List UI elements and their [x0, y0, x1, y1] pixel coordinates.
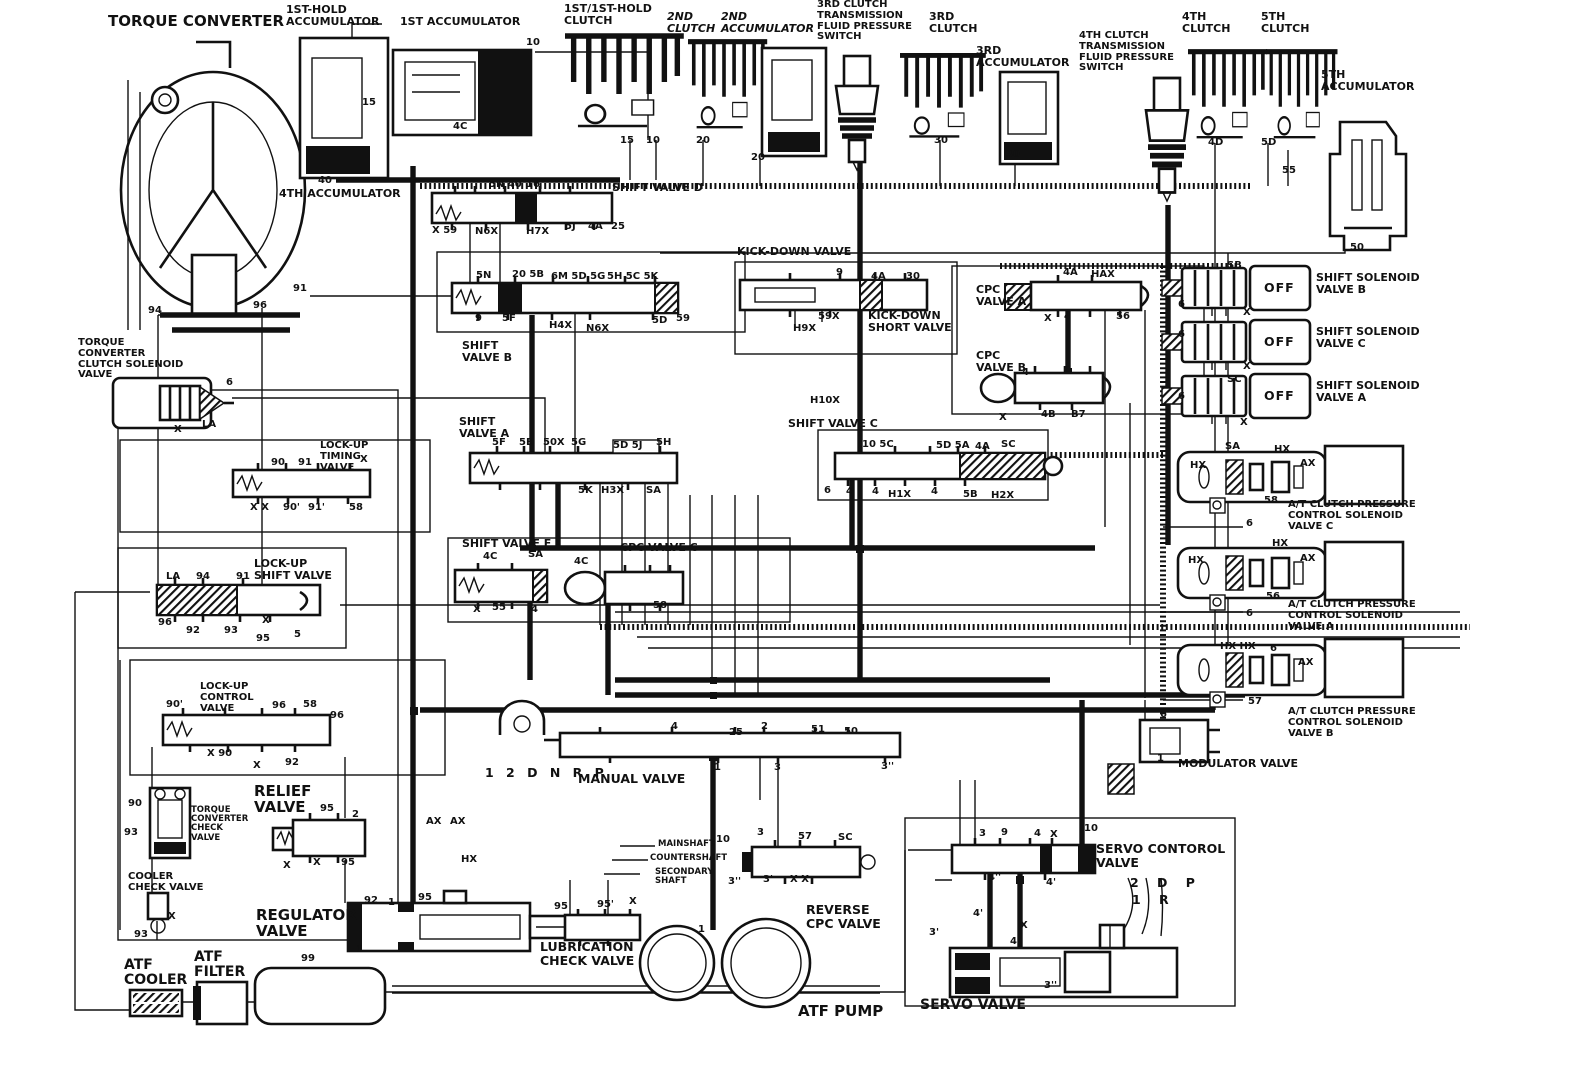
port-label: 4	[1064, 312, 1071, 322]
fifth-accumulator	[1330, 122, 1406, 250]
port-label: 5	[294, 630, 301, 640]
hydraulic-circuit-diagram: TORQUE CONVERTER 1ST-HOLD ACCUMULATOR 1S…	[0, 0, 1584, 1074]
label-atf-filter: ATF FILTER	[194, 950, 245, 979]
port-label: X X	[790, 875, 809, 885]
label-mainshaft: MAINSHAFT	[658, 840, 715, 849]
port-label: OFF	[1264, 390, 1295, 403]
label-servo-valve: SERVO VALVE	[920, 998, 1026, 1013]
label-fourth-accumulator: 4TH ACCUMULATOR	[279, 188, 401, 200]
label-first-hold-accumulator: 1ST-HOLD ACCUMULATOR	[286, 4, 379, 28]
label-atf-pump: ATF PUMP	[798, 1004, 883, 1020]
port-label: 94	[196, 572, 210, 582]
port-label: X	[999, 413, 1007, 423]
port-label: 5N 40	[489, 180, 522, 190]
port-label: 3''	[728, 877, 741, 887]
port-label: H3X	[601, 486, 624, 496]
port-label: 25	[611, 222, 625, 232]
port-label: X	[1243, 362, 1251, 372]
port-label: HAX	[1091, 270, 1115, 280]
label-cooler-check-valve: COOLER CHECK VALVE	[128, 872, 203, 894]
port-label: X	[1240, 418, 1248, 428]
port-label: SC	[1001, 440, 1016, 450]
port-label: 4''	[1010, 937, 1023, 947]
port-label: 59	[676, 314, 690, 324]
fourth-clutch	[1188, 52, 1267, 138]
port-label: SA	[646, 486, 661, 496]
label-shift-solenoid-b: SHIFT SOLENOID VALVE B	[1316, 272, 1420, 296]
port-label: X	[1243, 308, 1251, 318]
port-label: HX	[1272, 539, 1288, 549]
port-label: HX	[1190, 461, 1206, 471]
port-label: SA	[1225, 442, 1240, 452]
port-label: 10 5C	[862, 440, 894, 450]
port-label: 50	[1350, 243, 1364, 253]
port-label: X	[1050, 830, 1058, 840]
port-label: 10	[646, 136, 660, 146]
port-label: 95	[418, 893, 432, 903]
port-label: X	[629, 897, 637, 907]
port-label: H4X	[549, 321, 572, 331]
port-label: X	[313, 858, 321, 868]
port-label: 5D	[1261, 138, 1276, 148]
port-label: 15	[362, 98, 376, 108]
port-label: 91'	[308, 503, 325, 513]
port-label: LA	[202, 420, 216, 430]
port-label: 5D 5J	[613, 441, 642, 451]
port-label: X	[262, 616, 270, 626]
label-shift-solenoid-c: SHIFT SOLENOID VALVE C	[1316, 326, 1420, 350]
port-label: 5F	[492, 438, 506, 448]
port-label: 30	[934, 136, 948, 146]
label-lockup-control-valve: LOCK-UP CONTROL VALVE	[200, 682, 254, 714]
port-label: 91	[236, 572, 250, 582]
label-second-clutch: 2ND CLUTCH	[667, 11, 715, 35]
port-label: SB	[1227, 261, 1242, 271]
label-at-cpcs-a: A/T CLUTCH PRESSURE CONTROL SOLENOID VAL…	[1288, 600, 1416, 632]
label-shift-valve-c: SHIFT VALVE C	[788, 418, 878, 430]
second-clutch	[688, 42, 767, 128]
label-kick-down-valve: KICK-DOWN VALVE	[737, 246, 851, 258]
port-label: 9	[1001, 828, 1008, 838]
port-label: 4'	[973, 909, 983, 919]
port-label: OFF	[1264, 336, 1295, 349]
port-label: AX	[1300, 554, 1315, 564]
label-lubrication-check-valve: LUBRICATION CHECK VALVE	[540, 940, 634, 967]
port-label: X	[174, 425, 182, 435]
port-label: 16	[526, 180, 540, 190]
port-label: 50X	[543, 438, 565, 448]
port-label: 4D	[1208, 138, 1223, 148]
port-label: 6	[1270, 644, 1277, 654]
port-label: N6X	[586, 324, 609, 334]
port-label: 6	[1160, 710, 1167, 720]
port-label: 55	[492, 603, 506, 613]
port-label: 1	[388, 898, 395, 908]
label-cpc-valve-c: CPC VALVE C	[620, 542, 698, 554]
label-shift-solenoid-a: SHIFT SOLENOID VALVE A	[1316, 380, 1420, 404]
port-label: 4	[846, 487, 853, 497]
label-at-cpcs-c: A/T CLUTCH PRESSURE CONTROL SOLENOID VAL…	[1288, 500, 1416, 532]
port-label: 4C	[574, 557, 588, 567]
port-label: 3	[774, 763, 781, 773]
label-countershaft: COUNTERSHAFT	[650, 854, 727, 863]
label-manual-positions: 1 2 D N R P	[485, 766, 608, 780]
port-label: 57	[1248, 697, 1262, 707]
port-label: 55	[1282, 166, 1296, 176]
port-label: 9	[475, 314, 482, 324]
label-at-cpcs-b: A/T CLUTCH PRESSURE CONTROL SOLENOID VAL…	[1288, 707, 1416, 739]
shift-valve-b	[452, 276, 678, 320]
port-label: B7	[1071, 410, 1086, 420]
fourth-clutch-pressure-switch	[1146, 78, 1188, 201]
port-label: AX	[1298, 658, 1313, 668]
port-label: 4	[1022, 368, 1029, 378]
cooler-check-valve	[148, 893, 168, 933]
label-reverse-cpc-valve: REVERSE CPC VALVE	[806, 903, 881, 930]
port-label: 56	[1266, 592, 1280, 602]
port-label: 4	[1034, 829, 1041, 839]
port-label: 4A	[588, 222, 603, 232]
label-regulator-valve: REGULATOR VALVE	[256, 908, 357, 940]
port-label: 58	[349, 503, 363, 513]
port-label: 95	[320, 804, 334, 814]
port-label: 6	[1246, 609, 1253, 619]
port-label: 96	[253, 301, 267, 311]
first-first-hold-clutch	[565, 36, 684, 126]
port-label: 4	[931, 487, 938, 497]
label-kick-down-short-valve: KICK-DOWN SHORT VALVE	[868, 310, 952, 334]
port-label: 92	[186, 626, 200, 636]
port-label: 95'	[597, 900, 614, 910]
port-label: 4''	[988, 873, 1001, 883]
port-label: 3	[979, 829, 986, 839]
port-label: LA	[166, 572, 180, 582]
port-label: 5J	[565, 222, 576, 232]
port-label: 30	[906, 272, 920, 282]
label-cpc-valve-a: CPC VALVE A	[976, 284, 1026, 308]
label-first-first-hold-clutch: 1ST/1ST-HOLD CLUTCH	[564, 3, 652, 27]
port-label: X	[283, 861, 291, 871]
diagram-canvas	[0, 0, 1584, 1074]
port-label: 1	[714, 763, 721, 773]
port-label: 2	[761, 722, 768, 732]
port-label: 5H	[656, 438, 671, 448]
port-label: 10	[526, 38, 540, 48]
port-label: 93	[224, 626, 238, 636]
third-clutch-pressure-switch	[836, 56, 878, 170]
label-third-clutch: 3RD CLUTCH	[929, 11, 977, 35]
port-label: X	[1044, 314, 1052, 324]
port-label: 96	[272, 701, 286, 711]
label-relief-valve: RELIEF VALVE	[254, 784, 311, 816]
atf-cooler	[130, 990, 182, 1016]
servo-control-valve	[952, 838, 1095, 880]
port-label: 3'	[929, 928, 939, 938]
port-label: X	[473, 605, 481, 615]
port-label: 4C	[453, 122, 467, 132]
oil-pan	[255, 968, 385, 1024]
label-servo-control-valve: SERVO CONTOROL VALVE	[1096, 842, 1225, 869]
label-modulator-valve: MODULATOR VALVE	[1178, 758, 1298, 770]
port-label: HX	[1274, 445, 1290, 455]
port-label: 5D 5A	[936, 441, 969, 451]
third-clutch	[900, 55, 986, 136]
port-label: X	[1020, 921, 1028, 931]
port-label: 20 5B	[512, 270, 544, 280]
port-label: 99	[301, 954, 315, 964]
port-label: HX HX	[1220, 642, 1256, 652]
at-clutch-pressure-control-solenoid-b	[1178, 639, 1403, 707]
port-label: 90'	[283, 503, 300, 513]
port-label: 6	[1246, 519, 1253, 529]
port-label: 91	[298, 458, 312, 468]
port-label: 95	[256, 634, 270, 644]
port-label: H2X	[991, 491, 1014, 501]
port-label: H9X	[793, 324, 816, 334]
port-label: 3	[757, 828, 764, 838]
port-label: 10	[716, 835, 730, 845]
label-lockup-shift-valve: LOCK-UP SHIFT VALVE	[254, 558, 332, 582]
port-label: 59X	[818, 312, 840, 322]
port-label: 1	[1157, 754, 1164, 764]
port-label: 4	[872, 487, 879, 497]
port-label: X X	[250, 503, 269, 513]
port-label: 95	[554, 902, 568, 912]
label-cpc-valve-b: CPC VALVE B	[976, 350, 1026, 374]
port-label: 57	[798, 832, 812, 842]
port-label: 92	[285, 758, 299, 768]
port-label: 30	[1006, 150, 1020, 160]
servo-valve	[950, 925, 1177, 997]
atf-pump	[640, 919, 810, 1007]
port-label: AX	[426, 817, 441, 827]
label-torque-converter: TORQUE CONVERTER	[108, 14, 284, 30]
port-label: 5K	[578, 486, 593, 496]
port-label: 92	[364, 896, 378, 906]
port-label: 51	[811, 725, 825, 735]
port-label: SC	[1227, 375, 1242, 385]
port-label: 90'	[166, 700, 183, 710]
label-servo-pos-bottom: 1 R	[1132, 893, 1176, 907]
port-label: 1	[698, 925, 705, 935]
port-label: 3''	[1044, 981, 1057, 991]
port-label: 10	[1084, 824, 1098, 834]
port-label: 90	[128, 799, 142, 809]
label-third-accumulator: 3RD ACCUMULATOR	[976, 45, 1069, 69]
port-label: 90	[271, 458, 285, 468]
atf-filter	[193, 982, 247, 1024]
port-label: 95	[341, 858, 355, 868]
port-label: 40	[318, 176, 332, 186]
port-label: OFF	[1264, 282, 1295, 295]
port-label: 5F	[502, 314, 516, 324]
port-label: SC	[838, 833, 853, 843]
label-atf-cooler: ATF COOLER	[124, 958, 187, 987]
port-label: 15	[620, 136, 634, 146]
port-label: 58	[1264, 496, 1278, 506]
port-label: 6	[1178, 392, 1185, 402]
port-label: 93	[134, 930, 148, 940]
port-label: 3''	[881, 762, 894, 772]
port-label: HX	[1188, 556, 1204, 566]
port-label: 5D	[652, 316, 667, 326]
torque-converter	[121, 42, 305, 330]
port-label: 5H 5C 5K	[607, 272, 658, 282]
port-label: 4'	[1046, 878, 1056, 888]
port-label: 96	[330, 711, 344, 721]
port-label: AX	[1300, 459, 1315, 469]
label-servo-pos-top: 2 D P	[1130, 876, 1202, 890]
port-label: 20	[696, 136, 710, 146]
label-second-accumulator: 2ND ACCUMULATOR	[721, 11, 814, 35]
lockup-control-valve	[163, 708, 330, 752]
label-fourth-clutch-switch: 4TH CLUTCH TRANSMISSION FLUID PRESSURE S…	[1079, 31, 1174, 74]
port-label: AX	[450, 817, 465, 827]
port-label: 6	[226, 378, 233, 388]
port-label: 25	[729, 728, 743, 738]
label-fifth-accumulator: 5TH ACCUMULATOR	[1321, 69, 1414, 93]
label-tcc-solenoid-valve: TORQUE CONVERTER CLUTCH SOLENOID VALVE	[78, 338, 183, 381]
label-fifth-clutch: 5TH CLUTCH	[1261, 11, 1309, 35]
port-label: 4	[671, 722, 678, 732]
port-label: 4B	[1041, 410, 1056, 420]
label-fourth-clutch: 4TH CLUTCH	[1182, 11, 1230, 35]
port-label: 4A	[871, 272, 886, 282]
port-label: 91	[293, 284, 307, 294]
port-label: 58	[653, 601, 667, 611]
relief-valve	[273, 813, 365, 863]
label-shift-valve-d: SHIFT VALVE D	[612, 182, 703, 194]
port-label: N6X	[475, 227, 498, 237]
fifth-clutch	[1266, 52, 1338, 138]
port-label: X	[168, 912, 176, 922]
port-label: 56	[1116, 312, 1130, 322]
port-label: 58	[303, 700, 317, 710]
port-label: 4A	[1063, 268, 1078, 278]
port-label: 4A	[975, 442, 990, 452]
shift-valve-d	[432, 186, 612, 230]
label-secondary-shaft: SECONDARY SHAFT	[655, 868, 713, 886]
port-label: HX	[461, 855, 477, 865]
port-label: X 90	[207, 749, 232, 759]
port-label: H7X	[526, 227, 549, 237]
port-label: 2	[352, 810, 359, 820]
port-label: 4	[531, 605, 538, 615]
port-label: 1	[356, 945, 363, 955]
label-shift-valve-b: SHIFT VALVE B	[462, 340, 512, 364]
torque-converter-check-valve	[150, 788, 190, 858]
port-label: X	[360, 455, 368, 465]
port-label: 6M 5D 5G	[551, 272, 605, 282]
port-label: 5G	[571, 438, 586, 448]
port-label: H10X	[810, 396, 840, 406]
port-label: 94	[148, 306, 162, 316]
shift-valve-c	[835, 446, 1062, 486]
port-label: SA	[528, 550, 543, 560]
port-label: 96	[158, 618, 172, 628]
label-tc-check-valve: TORQUE CONVERTER CHECK VALVE	[191, 806, 248, 843]
port-label: 6	[1178, 330, 1185, 340]
port-label: X 59	[432, 226, 457, 236]
port-label: 3'	[763, 875, 773, 885]
label-first-accumulator: 1ST ACCUMULATOR	[400, 16, 520, 28]
port-label: 4C	[483, 552, 497, 562]
port-label: 20	[751, 153, 765, 163]
port-label: 6	[1178, 300, 1185, 310]
port-label: 5N	[476, 271, 491, 281]
port-label: X	[253, 761, 261, 771]
second-accumulator	[762, 48, 826, 156]
port-label: 6	[824, 486, 831, 496]
lockup-shift-valve	[157, 578, 320, 622]
port-label: H1X	[888, 490, 911, 500]
label-third-clutch-switch: 3RD CLUTCH TRANSMISSION FLUID PRESSURE S…	[817, 0, 912, 43]
port-label: 5B	[963, 490, 978, 500]
port-label: 50	[844, 727, 858, 737]
port-label: 93	[124, 828, 138, 838]
port-label: 5E	[519, 438, 533, 448]
port-label: 9	[836, 268, 843, 278]
